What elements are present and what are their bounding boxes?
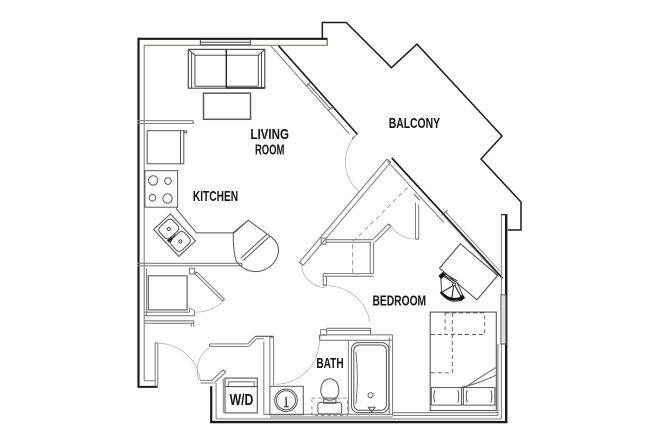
svg-text:BATH: BATH — [316, 356, 343, 372]
svg-text:W/D: W/D — [230, 392, 254, 409]
svg-text:KITCHEN: KITCHEN — [193, 189, 238, 205]
svg-text:BALCONY: BALCONY — [389, 116, 441, 132]
svg-text:LIVING: LIVING — [250, 127, 289, 143]
svg-text:BEDROOM: BEDROOM — [373, 294, 427, 310]
svg-text:ROOM: ROOM — [255, 142, 285, 158]
